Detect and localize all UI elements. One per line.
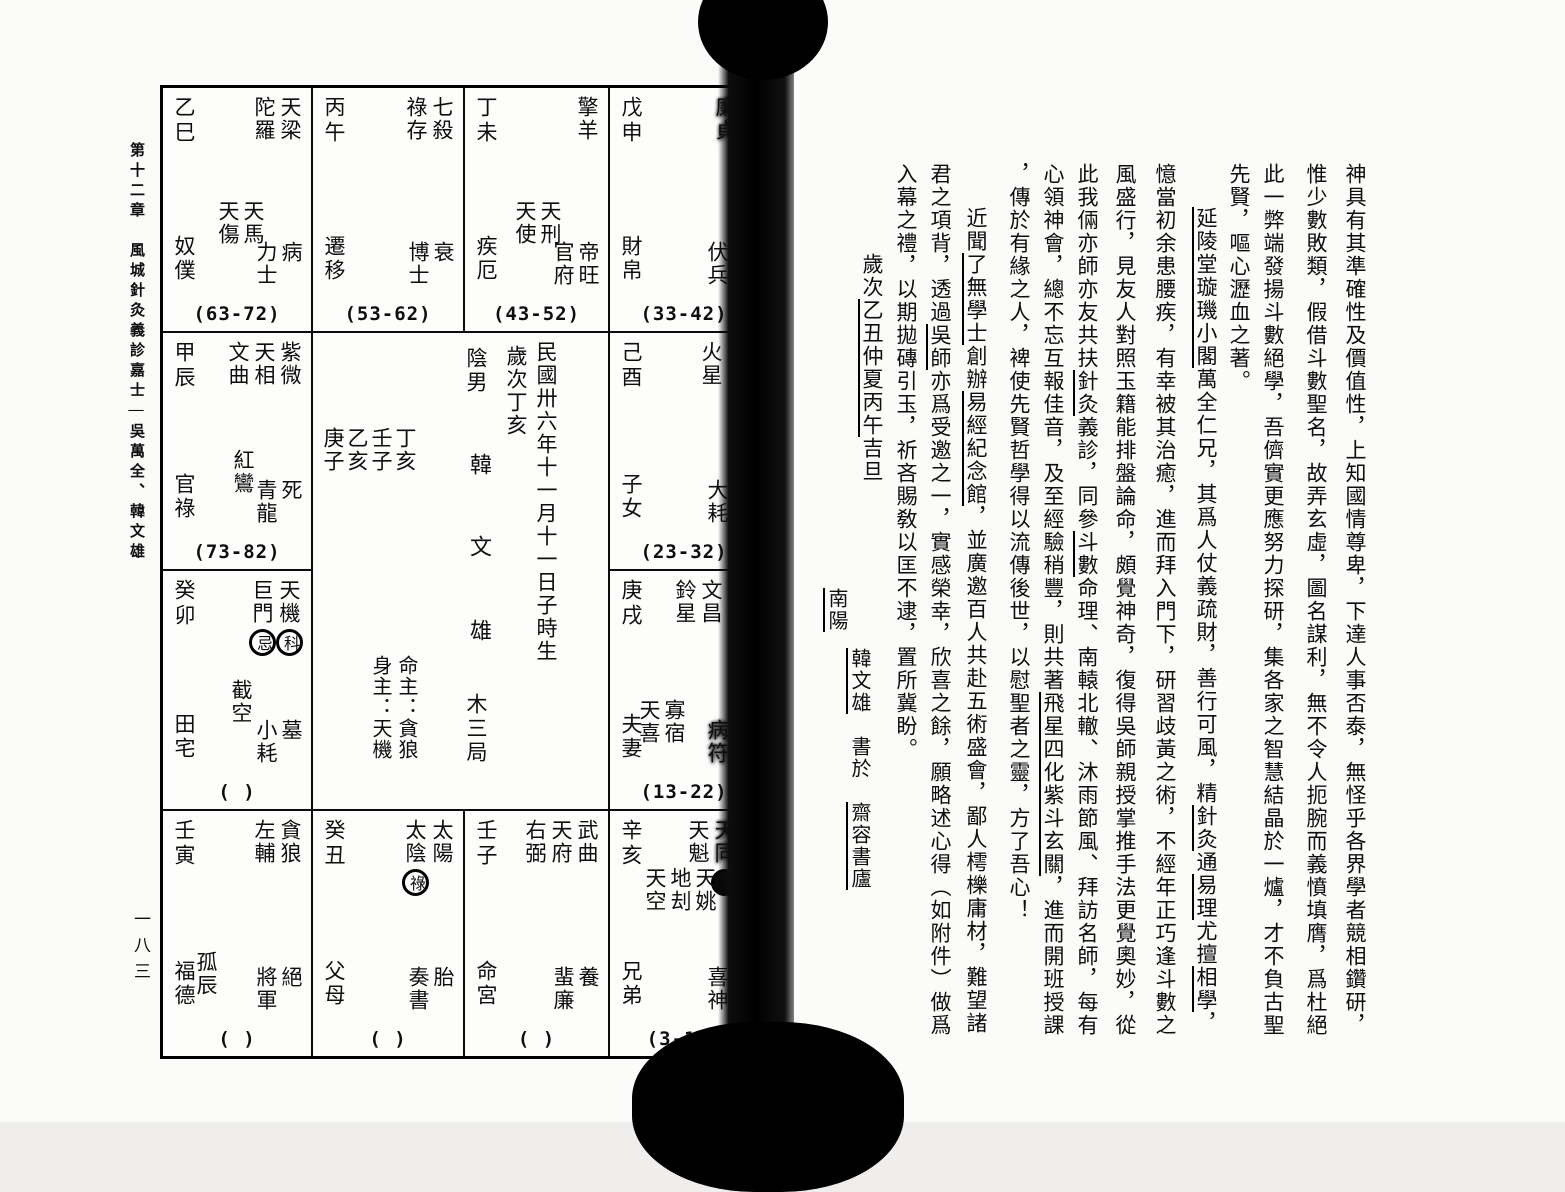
minor-star: 截空 (228, 679, 253, 725)
text-run: 惟少數敗類，假借斗數聖名，故弄玄虛，圖名謀利，無不令人扼腕而義憤填膺，爲杜絕 (1304, 163, 1328, 1037)
year-cycle: 歲次丁亥 (501, 345, 531, 437)
text-run: 通 (1194, 851, 1218, 874)
stem-branch: 己酉 (616, 341, 646, 391)
birth-date: 民國卅六年十一月十一日子時生 (531, 341, 561, 663)
text-run: 萬全仁兄，其爲人仗義疏財，善行可風，精 (1194, 368, 1218, 805)
emphasized-name: 相學 (1192, 966, 1218, 1012)
emphasized-name: 飛星四化紫斗玄關 (1039, 692, 1065, 876)
date-line: 歲次乙丑仲夏丙午吉旦 (857, 253, 887, 483)
name-char: 文 (463, 535, 495, 557)
palace-name: 官祿 (169, 473, 199, 521)
palace-name: 田宅 (169, 713, 199, 761)
stage-and-year-god: 絕將軍 (253, 966, 303, 1012)
palace-name: 兄弟 (616, 960, 646, 1008)
text-column: 此我倆亦師亦友共扶針灸義診，同參斗數命理、南轅北轍、沐雨節風、拜訪名師，每有 (1074, 163, 1100, 1037)
stage-and-year-god: 病力士 (253, 241, 303, 287)
stem-branch: 庚戌 (616, 579, 646, 629)
stem-branch: 癸丑 (319, 819, 349, 869)
palace-name: 財帛 (616, 235, 646, 283)
text-column: 神具有其準確性及價值性，上知國情尊卑，下達人事否泰，無怪乎各界學者競相鑽研， (1342, 163, 1368, 1037)
year-god: 力士 (253, 241, 278, 287)
year-god: 奏書 (405, 966, 430, 1012)
pillar: 壬子 (369, 427, 393, 473)
life-stage: 病 (278, 241, 303, 287)
emphasized-name: 乙丑 (858, 299, 884, 345)
major-stars: 紫微天相文曲 (225, 341, 303, 387)
minor-stars: 天刑天使 (512, 200, 562, 246)
year-god: 蜚廉 (550, 966, 575, 1012)
text-column: 先賢，嘔心瀝血之著。 (1226, 163, 1252, 393)
star: 左輔 (251, 819, 277, 865)
life-stage: 絕 (278, 966, 303, 1012)
major-stars: 天梁陀羅 (251, 96, 303, 142)
chapter-margin-title: 第十二章 風城針灸義診嘉士—吳萬全、韓文雄 (126, 142, 147, 563)
text-run: 神具有其準確性及價值性，上知國情尊卑，下達人事否泰，無怪乎各界學者競相鑽研， (1343, 163, 1367, 1037)
palace-cell-mao: 癸卯天機科巨門忌截空田宅墓小耗( ) (163, 571, 313, 811)
chart-center-panel: 民國卅六年十一月十一日子時生 歲次丁亥 陰男 木三局 丁亥壬子乙亥庚子 命主：貪… (313, 333, 610, 811)
stage-and-year-god: 胎奏書 (405, 966, 455, 1012)
palace-cell-si: 乙巳天梁陀羅天馬天傷奴僕病力士(63-72) (163, 88, 313, 333)
stem-branch: 甲辰 (169, 341, 199, 391)
stage-and-year-god: 帝旺官府 (550, 241, 600, 287)
text-run: 命理、南轅北轍、沐雨節風、拜訪名師，每有 (1075, 577, 1099, 1037)
text-run: ，並廣邀百人共赴五術盛會，鄙人樗櫟庸材，難望諸 (964, 506, 988, 1035)
minor-stars: 截空 (228, 679, 253, 725)
ziwei-doushu-chart: 民國卅六年十一月十一日子時生 歲次丁亥 陰男 木三局 丁亥壬子乙亥庚子 命主：貪… (160, 85, 761, 1059)
emphasized-name: 斗數 (1073, 531, 1099, 577)
left-book-page: 第十二章 風城針灸義診嘉士—吳萬全、韓文雄 一八三 民國卅六年十一月十一日子時生… (0, 0, 790, 1122)
stage-and-year-god: 死青龍 (253, 479, 303, 525)
text-run: ， (1194, 1012, 1218, 1035)
text-run: 吉旦 (860, 437, 884, 483)
star: 天府 (548, 819, 574, 865)
star: 貪狼 (277, 819, 303, 865)
text-run: 君之項背，透過 (928, 163, 952, 324)
life-body-masters: 命主：貪狼 身主：天機 (367, 655, 419, 760)
year-god: 青龍 (253, 479, 278, 525)
text-run: 義診，同參 (1075, 416, 1099, 531)
four-pillars: 丁亥壬子乙亥庚子 (321, 427, 417, 473)
minor-star: 地刦 (667, 867, 692, 913)
palace-name: 命宮 (471, 960, 501, 1008)
gender-label: 陰男 (461, 347, 491, 395)
text-run: ，傳於有緣之人，裨使先賢哲學得以流傳後世，以慰聖者之靈，方了吾心！ (1007, 163, 1031, 922)
palace-cell-wu: 丙午七殺祿存遷移衰博士(53-62) (313, 88, 465, 333)
text-run: 書於 (848, 714, 870, 802)
palace-cell-zi: 壬子武曲天府右弼命宮養蜚廉( ) (465, 811, 610, 1056)
major-stars: 天機科巨門忌 (249, 579, 303, 656)
text-run: 風盛行，見友人對照玉籍能排盤論命，頗覺神奇，復得吳師親授掌推手法更覺奧妙，從 (1113, 163, 1137, 1037)
text-run: 創辦 (964, 345, 988, 391)
palace-name: 子女 (616, 473, 646, 521)
text-column: 近聞了無學士創辦易經紀念館，並廣邀百人共赴五術盛會，鄙人樗櫟庸材，難望諸 (963, 163, 989, 1035)
signature-place: 南陽 (822, 588, 851, 632)
text-column: 憶當初余患腰疾，有幸被其治癒，進而拜入門下，研習歧黃之術，不經年正巧逢斗數之 (1152, 163, 1178, 1037)
star: 巨門忌 (249, 579, 276, 656)
text-run: 憶當初余患腰疾，有幸被其治癒，進而拜入門下，研習歧黃之術，不經年正巧逢斗數之 (1153, 163, 1177, 1037)
minor-star: 天傷 (215, 200, 240, 246)
minor-star: 天使 (512, 200, 537, 246)
year-god: 小耗 (253, 719, 278, 765)
minor-stars: 天姚地刦天空 (642, 867, 717, 913)
minor-stars: 天馬天傷 (215, 200, 265, 246)
stem-branch: 戊申 (616, 96, 646, 146)
minor-star: 天刑 (537, 200, 562, 246)
stem-branch: 丙午 (319, 96, 349, 146)
left-page-number: 一八三 (128, 910, 153, 988)
text-run: 歲次 (860, 253, 884, 299)
star: 七殺 (429, 96, 455, 142)
text-run: 入幕之禮，以期拋磚引玉，祈吝賜敎以匡不逮，置所冀盼。 (894, 163, 918, 761)
life-stage: 養 (575, 966, 600, 1012)
stem-branch: 癸卯 (169, 579, 199, 629)
text-run: ，進而開班授課 (1041, 876, 1065, 1037)
palace-name: 疾厄 (471, 235, 501, 283)
stem-branch: 壬子 (471, 819, 501, 869)
decade-range: (43-52) (465, 303, 608, 325)
pillar: 庚子 (321, 427, 345, 473)
minor-star: 天空 (642, 867, 667, 913)
star: 陀羅 (251, 96, 277, 142)
pillar: 乙亥 (345, 427, 369, 473)
emphasized-name: 齋容書廬 (846, 802, 870, 890)
minor-star: 寡宿 (661, 699, 686, 745)
star: 天梁 (277, 96, 303, 142)
minor-star: 天馬 (240, 200, 265, 246)
pillar: 丁亥 (393, 427, 417, 473)
palace-name: 奴僕 (169, 235, 199, 283)
bureau-label: 木三局 (461, 693, 491, 765)
life-stage: 墓 (278, 719, 303, 765)
stem-branch: 壬寅 (169, 819, 199, 869)
emphasized-name: 吳師 (926, 324, 952, 370)
life-stage: 胎 (430, 966, 455, 1012)
star: 文曲 (225, 341, 251, 387)
palace-name: 父母 (319, 960, 349, 1008)
major-stars: 貪狼左輔 (251, 819, 303, 865)
emphasized-name: 南陽 (823, 588, 847, 632)
text-column: 此一弊端發揚斗數絕學，吾儕實更應努力探研，集各家之智慧結晶於一爐，才不負古聖 (1260, 163, 1286, 1037)
palace-name: 夫妻 (616, 713, 646, 761)
transform-mark: 祿 (402, 869, 429, 896)
minor-star: 天姚 (692, 867, 717, 913)
major-stars: 武曲天府右弼 (522, 819, 600, 865)
text-column: 風盛行，見友人對照玉籍能排盤論命，頗覺神奇，復得吳師親授掌推手法更覺奧妙，從 (1112, 163, 1138, 1037)
decade-range: ( ) (465, 1028, 608, 1050)
star: 太陰祿 (402, 819, 429, 896)
signature-name-line: 韓文雄 書於 齋容書廬 (845, 648, 874, 890)
emphasized-name: 了無學士 (962, 253, 988, 345)
stage-and-year-god: 墓小耗 (253, 719, 303, 765)
text-column: 惟少數敗類，假借斗數聖名，故弄玄虛，圖名謀利，無不令人扼腕而義憤填膺，爲杜絕 (1303, 163, 1329, 1037)
emphasized-name: 韓文雄 (846, 648, 870, 714)
star: 右弼 (522, 819, 548, 865)
major-stars: 七殺祿存 (403, 96, 455, 142)
emphasized-name: 針灸 (1073, 370, 1099, 416)
palace-cell-yin: 壬寅貪狼左輔孤辰福德絕將軍( ) (163, 811, 313, 1056)
stage-and-year-god: 衰博士 (405, 241, 455, 287)
palace-cell-chen: 甲辰紫微天相文曲紅鸞官祿死青龍(73-82) (163, 333, 313, 571)
star: 天相 (251, 341, 277, 387)
major-stars: 擎羊 (574, 96, 600, 142)
book-binding-gutter (718, 0, 794, 1122)
decade-range: ( ) (313, 1028, 463, 1050)
star: 天機科 (276, 579, 303, 656)
star: 武曲 (574, 819, 600, 865)
emphasized-name: 易經紀念館 (962, 391, 988, 506)
life-master: 命主：貪狼 (393, 655, 419, 760)
palace-cell-chou: 癸丑太陽太陰祿父母胎奏書( ) (313, 811, 465, 1056)
major-stars: 太陽太陰祿 (402, 819, 455, 896)
text-run: 亦爲受邀之一，實感榮幸，欣喜之餘，願略述心得（如附件）做爲 (928, 370, 952, 1037)
decade-range: ( ) (163, 1028, 311, 1050)
name-char: 韓 (463, 453, 495, 475)
text-run: 心領神會，總不忘互報佳音，及至經驗稍豐，則共著 (1041, 163, 1065, 692)
palace-name: 福德 (169, 960, 199, 1008)
decade-range: (63-72) (163, 303, 311, 325)
text-run: 先賢，嘔心瀝血之著。 (1227, 163, 1251, 393)
text-column: 入幕之禮，以期拋磚引玉，祈吝賜敎以匡不逮，置所冀盼。 (893, 163, 919, 761)
transform-mark: 科 (276, 629, 303, 656)
minor-star: 紅鸞 (230, 449, 255, 495)
stage-and-year-god: 養蜚廉 (550, 966, 600, 1012)
year-god: 將軍 (253, 966, 278, 1012)
life-stage: 帝旺 (575, 241, 600, 287)
palace-name: 遷移 (319, 235, 349, 283)
life-stage: 死 (278, 479, 303, 525)
text-run: 近聞 (964, 207, 988, 253)
emphasized-name: 易理 (1192, 874, 1218, 920)
star: 紫微 (277, 341, 303, 387)
text-run: 此我倆亦師亦友共扶 (1075, 163, 1099, 370)
emphasized-name: 延陵堂璇璣小閣 (1192, 207, 1218, 368)
name-char: 雄 (463, 619, 495, 641)
stem-branch: 辛亥 (616, 819, 646, 869)
stem-branch: 丁未 (471, 96, 501, 146)
body-master: 身主：天機 (367, 655, 393, 760)
emphasized-name: 丙午 (858, 391, 884, 437)
text-column: 心領神會，總不忘互報佳音，及至經驗稍豐，則共著飛星四化紫斗玄關，進而開班授課 (1040, 163, 1066, 1037)
year-god: 官府 (550, 241, 575, 287)
decade-range: ( ) (163, 781, 311, 803)
year-god: 博士 (405, 241, 430, 287)
emphasized-name: 針灸 (1192, 805, 1218, 851)
text-column: 延陵堂璇璣小閣萬全仁兄，其爲人仗義疏財，善行可風，精針灸通易理尤擅相學， (1193, 163, 1219, 1035)
emphasized-name: 仲夏 (858, 345, 884, 391)
life-stage: 衰 (430, 241, 455, 287)
text-run: 此一弊端發揚斗數絕學，吾儕實更應努力探研，集各家之智慧結晶於一爐，才不負古聖 (1261, 163, 1285, 1037)
star: 鈴星 (672, 579, 698, 625)
text-column: ，傳於有緣之人，裨使先賢哲學得以流傳後世，以慰聖者之靈，方了吾心！ (1006, 163, 1032, 922)
palace-cell-wei: 丁未擎羊天刑天使疾厄帝旺官府(43-52) (465, 88, 610, 333)
minor-stars: 紅鸞 (230, 449, 255, 495)
decade-range: (53-62) (313, 303, 463, 325)
text-column: 君之項背，透過吳師亦爲受邀之一，實感榮幸，欣喜之餘，願略述心得（如附件）做爲 (927, 163, 953, 1037)
star: 太陽 (429, 819, 455, 896)
text-run: 尤擅 (1194, 920, 1218, 966)
star: 擎羊 (574, 96, 600, 142)
decade-range: (73-82) (163, 541, 311, 563)
stem-branch: 乙巳 (169, 96, 199, 146)
star: 祿存 (403, 96, 429, 142)
transform-mark: 忌 (249, 629, 276, 656)
